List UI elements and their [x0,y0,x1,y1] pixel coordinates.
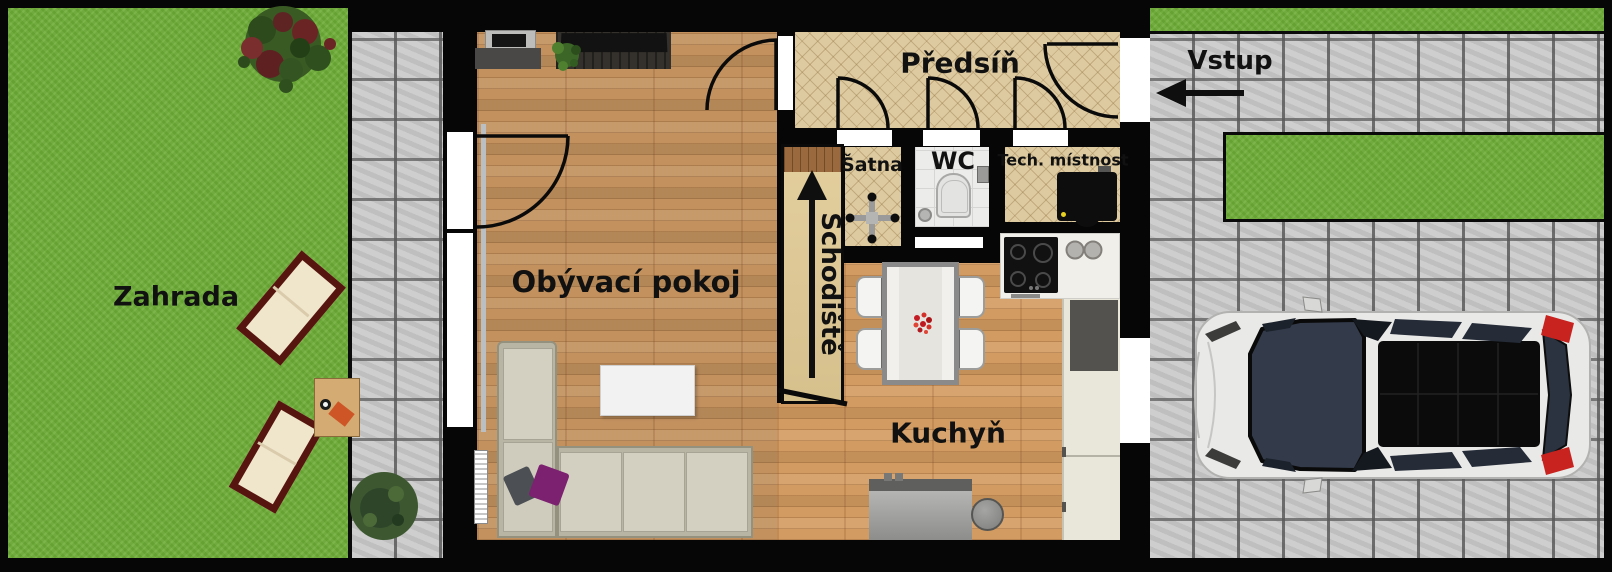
stair-bottom-edge [778,390,847,404]
front-door-arc [1045,44,1118,117]
floor-plan: Zahrada Obývací pokoj Předsíň Šatna WC T… [0,0,1612,572]
car-windshield [1250,320,1364,470]
wc-label: WC [931,147,975,175]
houseplant [552,42,581,71]
utility-room-label: Tech. místnost [997,151,1128,170]
staircase-label: Schodiště [815,212,845,356]
garden-tree [238,6,336,93]
closet-door-arc [838,78,888,128]
car [1195,297,1590,493]
plan-overlay [0,0,1612,572]
entrance-arrow-icon [1156,79,1244,107]
kitchen-label: Kuchyň [890,417,1006,450]
path-bush [350,472,418,540]
car-mirror [1303,297,1322,312]
living-room-label: Obývací pokoj [511,265,740,299]
coat-rack-icon [846,193,900,244]
entrance-label: Vstup [1187,46,1272,76]
sink-bowls [1067,242,1102,259]
door-arcs [477,40,1118,227]
terrace-door-arc [477,136,568,227]
living-hallway-door-arc [707,40,777,110]
closet-label: Šatna [841,154,903,176]
wc-door-arc [928,78,978,128]
table-flowers [914,313,933,335]
cooktop-burners [1011,244,1052,289]
car-mirror [1303,478,1322,493]
garden-label: Zahrada [113,282,239,313]
hallway-label: Předsíň [900,47,1020,80]
